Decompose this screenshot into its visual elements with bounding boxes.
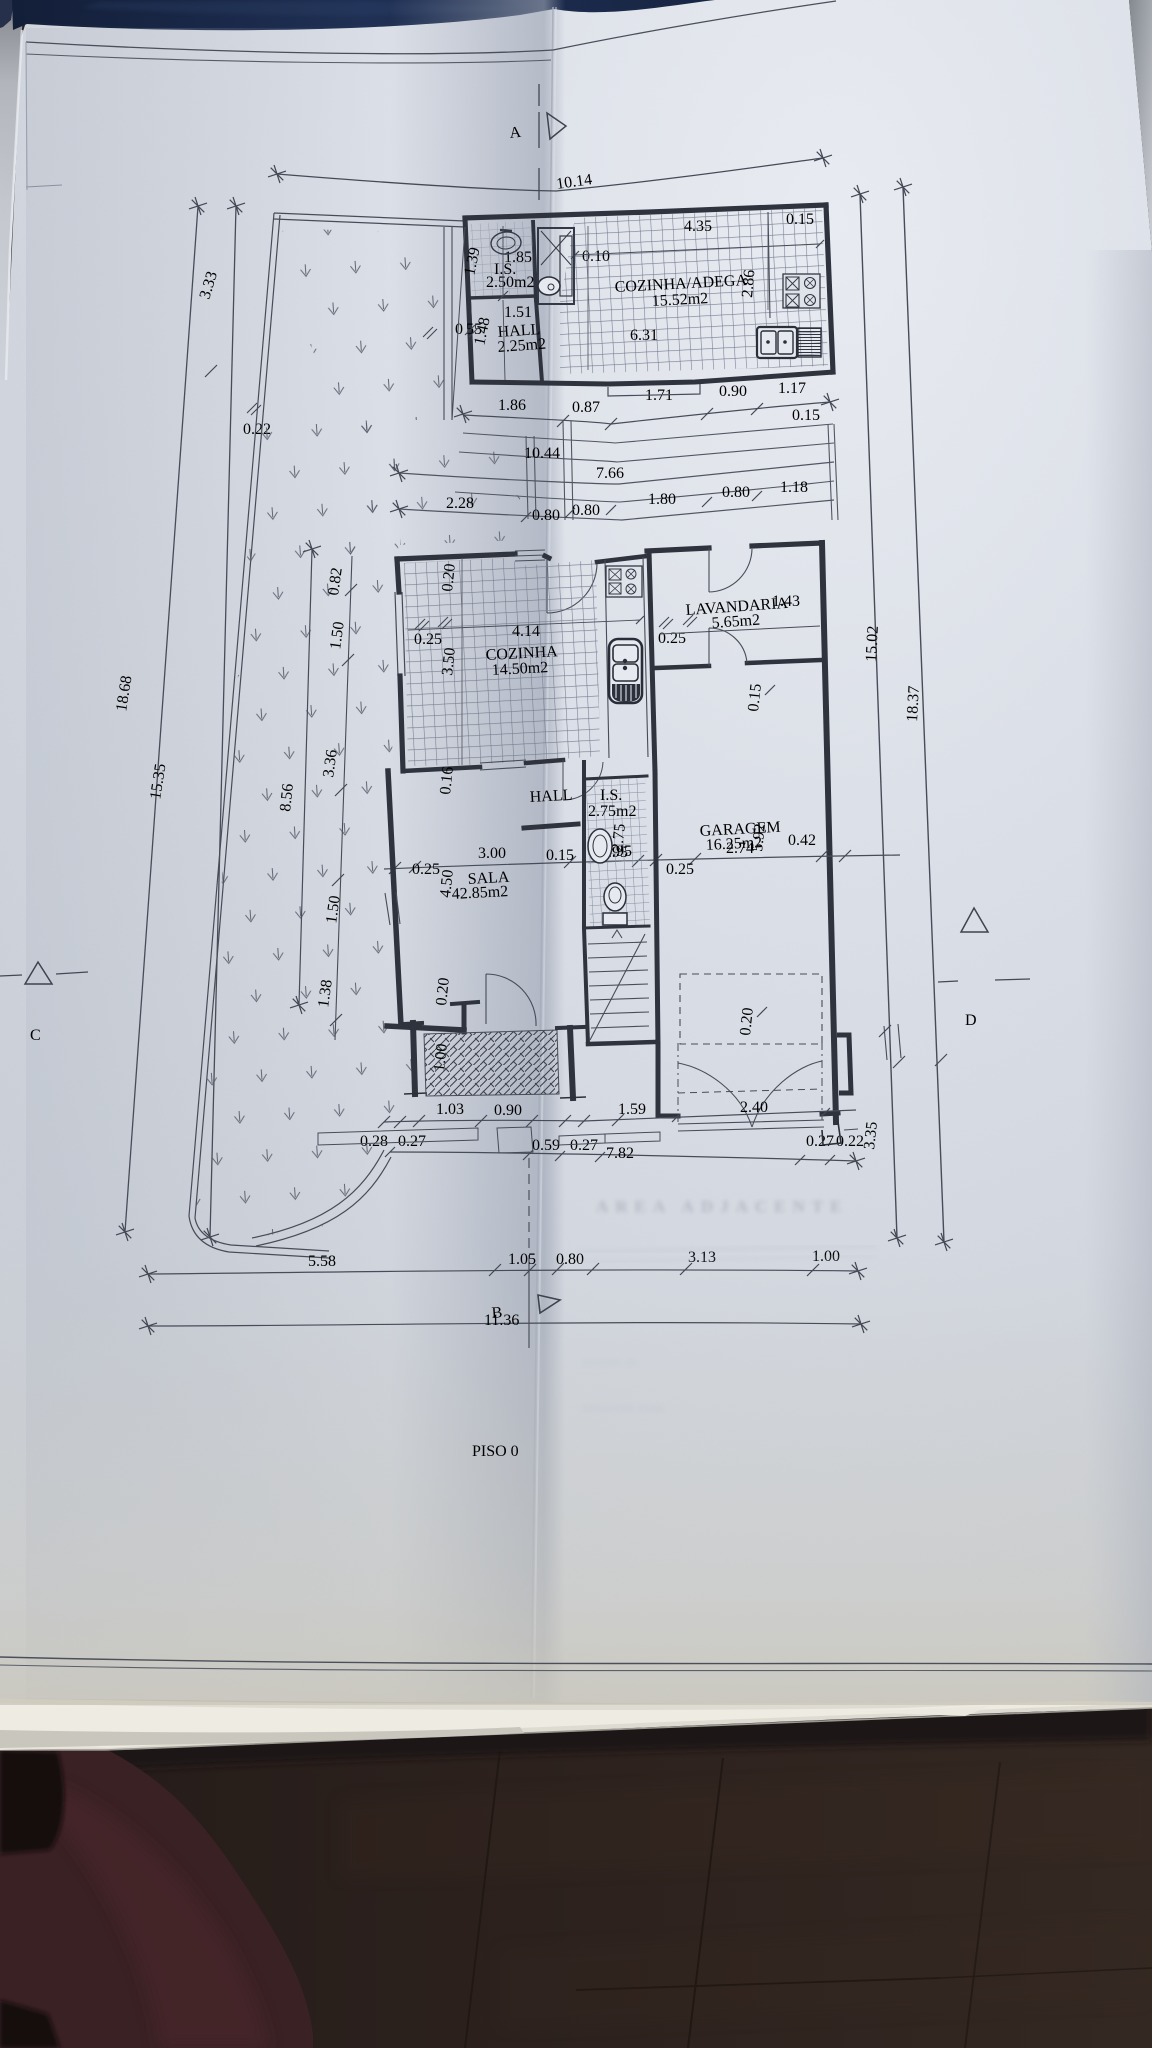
svg-text:0.80: 0.80 bbox=[532, 507, 560, 524]
svg-text:1.18: 1.18 bbox=[780, 479, 808, 496]
svg-text:xxxxxx xx: xxxxxx xx bbox=[582, 1354, 638, 1369]
svg-text:2.28: 2.28 bbox=[446, 495, 474, 512]
svg-text:1.05: 1.05 bbox=[508, 1251, 536, 1268]
svg-text:xxxxxxxx xxxx: xxxxxxxx xxxx bbox=[582, 1400, 664, 1415]
svg-text:0.80: 0.80 bbox=[572, 502, 600, 519]
svg-text:18.37: 18.37 bbox=[904, 685, 923, 722]
svg-text:AREA ADJACENTE: AREA ADJACENTE bbox=[596, 1197, 848, 1216]
svg-text:0.15: 0.15 bbox=[745, 683, 765, 713]
svg-text:0.20: 0.20 bbox=[439, 563, 459, 593]
svg-text:1.51: 1.51 bbox=[504, 304, 532, 321]
svg-text:6.31: 6.31 bbox=[630, 327, 658, 344]
svg-text:15.02: 15.02 bbox=[863, 625, 882, 662]
svg-text:14.50m2: 14.50m2 bbox=[491, 659, 548, 679]
svg-text:1.17: 1.17 bbox=[778, 380, 806, 397]
svg-text:4.50: 4.50 bbox=[437, 869, 457, 899]
svg-text:1.00: 1.00 bbox=[431, 1043, 451, 1073]
svg-text:3.35: 3.35 bbox=[861, 1121, 881, 1151]
svg-text:2.75m2: 2.75m2 bbox=[588, 803, 636, 820]
svg-text:4.35: 4.35 bbox=[684, 218, 712, 235]
svg-text:0.80: 0.80 bbox=[722, 484, 750, 501]
svg-text:15.52m2: 15.52m2 bbox=[651, 290, 708, 310]
svg-text:0.90: 0.90 bbox=[494, 1102, 522, 1119]
svg-text:0.16: 0.16 bbox=[437, 766, 457, 796]
svg-text:1.80: 1.80 bbox=[648, 491, 676, 508]
svg-text:3.50: 3.50 bbox=[439, 647, 459, 677]
svg-text:1.86: 1.86 bbox=[498, 397, 526, 414]
svg-text:10.44: 10.44 bbox=[524, 445, 560, 462]
svg-text:A: A bbox=[509, 124, 523, 142]
svg-text:8.56: 8.56 bbox=[277, 783, 297, 813]
svg-text:0.15: 0.15 bbox=[786, 211, 814, 228]
svg-text:7.66: 7.66 bbox=[596, 465, 624, 482]
svg-text:1.59: 1.59 bbox=[618, 1101, 646, 1118]
svg-text:1.03: 1.03 bbox=[436, 1101, 464, 1118]
svg-text:0.90: 0.90 bbox=[719, 383, 747, 400]
svg-text:PISO 0: PISO 0 bbox=[472, 1443, 519, 1460]
svg-text:0.87: 0.87 bbox=[572, 399, 600, 416]
svg-text:0.59: 0.59 bbox=[532, 1137, 560, 1154]
svg-text:2.86: 2.86 bbox=[739, 269, 758, 298]
svg-text:2.40: 2.40 bbox=[740, 1099, 768, 1116]
svg-text:0.28: 0.28 bbox=[360, 1133, 388, 1150]
svg-text:0.27: 0.27 bbox=[806, 1133, 834, 1150]
svg-text:3.00: 3.00 bbox=[478, 845, 506, 862]
svg-text:7.82: 7.82 bbox=[606, 1145, 634, 1162]
svg-text:0: 0 bbox=[455, 321, 463, 338]
svg-text:5.92: 5.92 bbox=[749, 823, 769, 853]
svg-text:0.25: 0.25 bbox=[414, 631, 442, 648]
svg-text:5.58: 5.58 bbox=[308, 1253, 336, 1270]
svg-text:HALL: HALL bbox=[529, 787, 572, 806]
svg-text:I.S.: I.S. bbox=[600, 787, 622, 804]
svg-text:0.20: 0.20 bbox=[737, 1007, 757, 1037]
svg-text:D: D bbox=[965, 1012, 977, 1029]
svg-text:0.20: 0.20 bbox=[433, 977, 453, 1007]
svg-text:0.15: 0.15 bbox=[792, 407, 820, 424]
svg-text:0.10: 0.10 bbox=[582, 248, 610, 265]
svg-text:C: C bbox=[30, 1027, 41, 1044]
svg-text:1.43: 1.43 bbox=[772, 593, 800, 610]
svg-text:0.42: 0.42 bbox=[788, 832, 816, 849]
svg-text:0.15: 0.15 bbox=[546, 847, 574, 864]
svg-text:0.25: 0.25 bbox=[412, 861, 440, 878]
svg-text:0.27: 0.27 bbox=[570, 1137, 598, 1154]
svg-text:11.36: 11.36 bbox=[484, 1312, 519, 1329]
svg-text:2.50m2: 2.50m2 bbox=[486, 274, 534, 291]
svg-text:0.25: 0.25 bbox=[666, 861, 694, 878]
svg-text:42.85m2: 42.85m2 bbox=[451, 883, 508, 903]
